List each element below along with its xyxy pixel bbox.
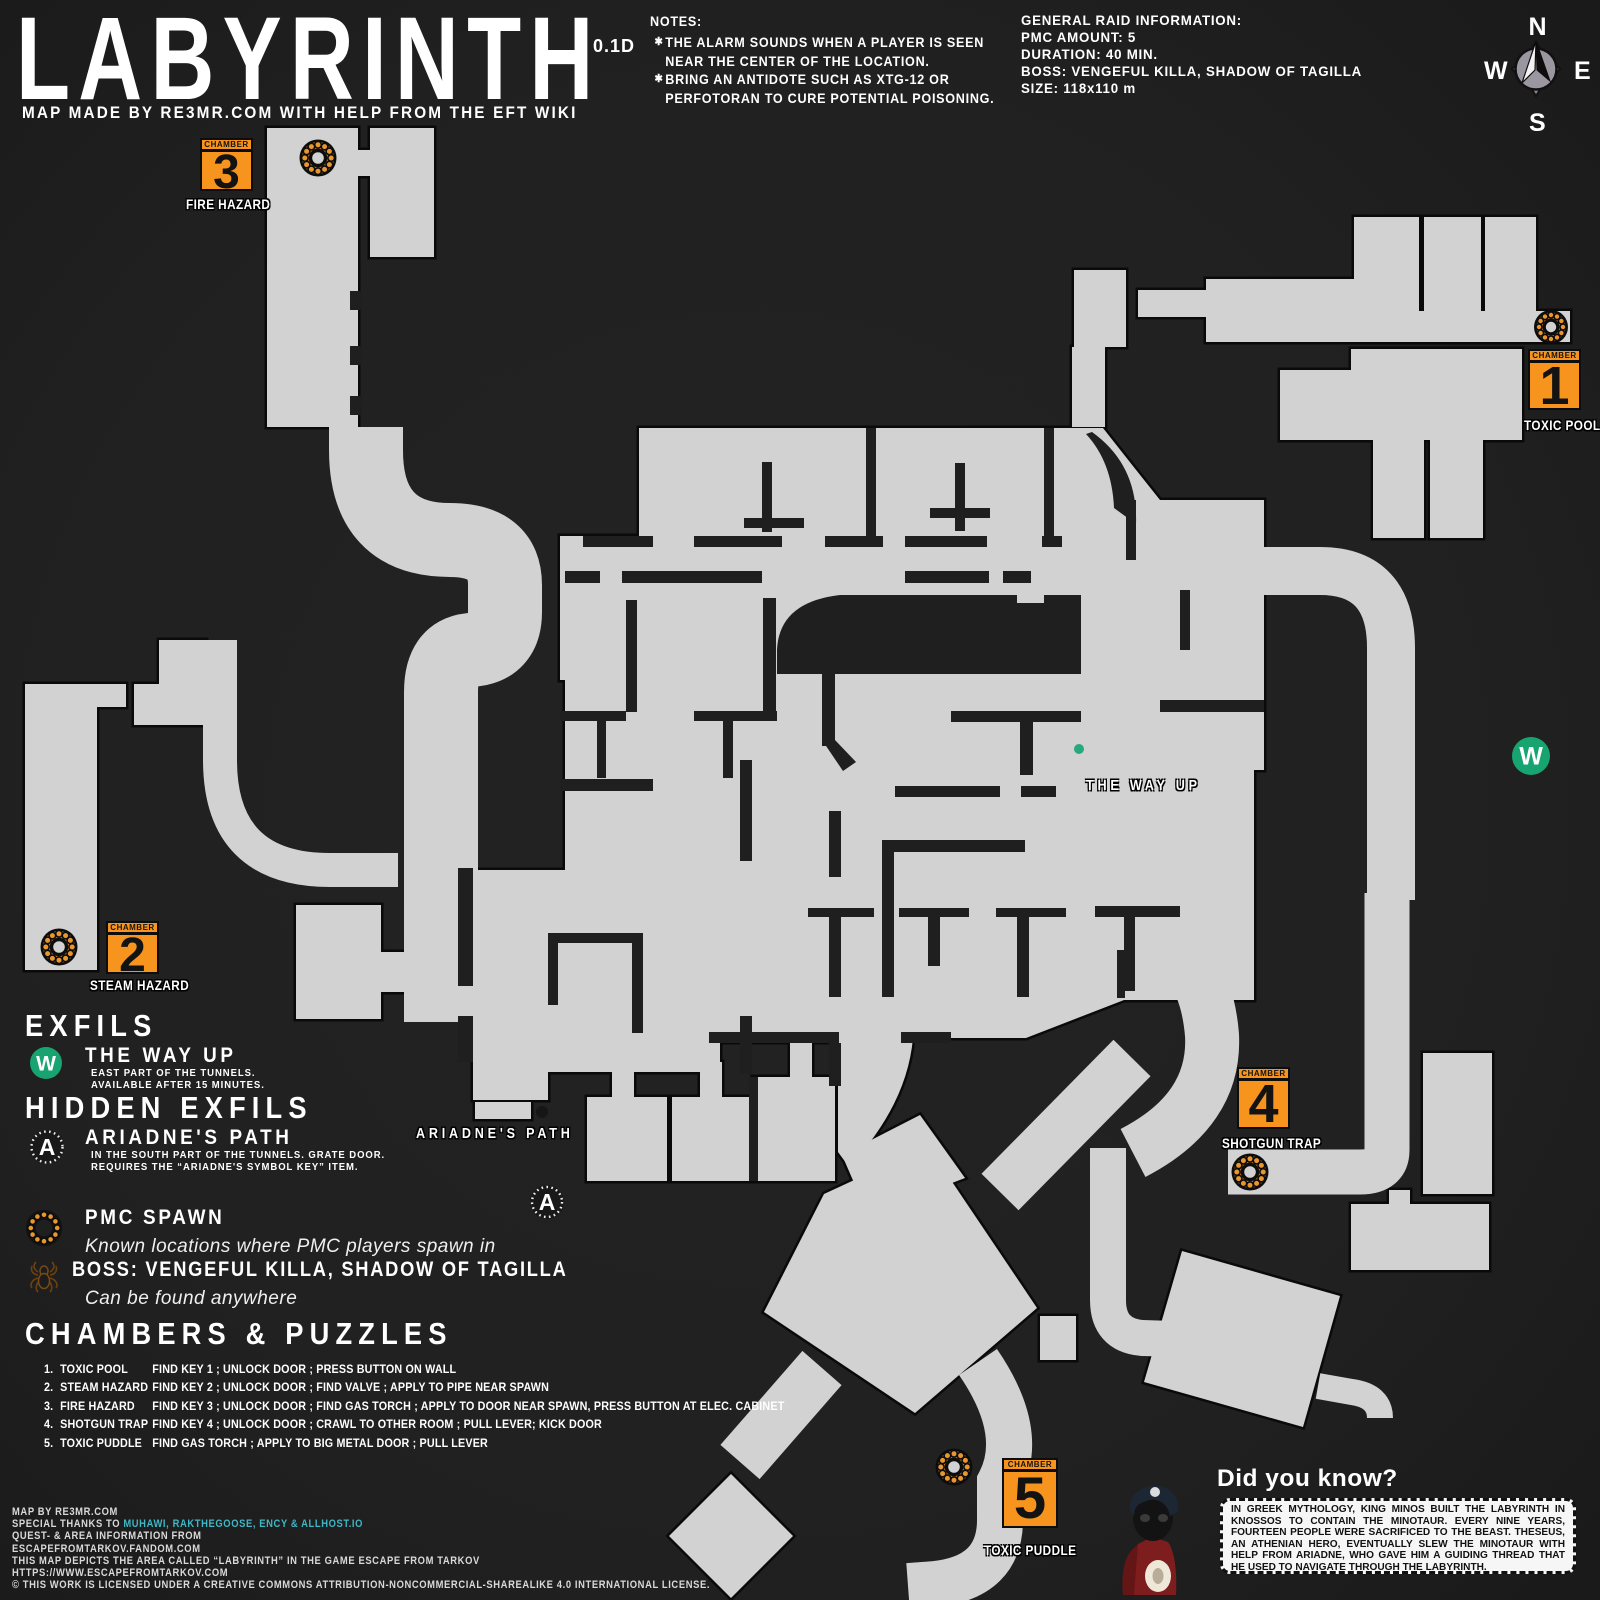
svg-text:W: W bbox=[36, 1053, 56, 1076]
svg-text:W: W bbox=[1519, 743, 1543, 771]
svg-text:A: A bbox=[39, 1134, 56, 1160]
svg-text:N: N bbox=[1529, 13, 1547, 41]
svg-text:W: W bbox=[1484, 57, 1508, 85]
svg-text:S: S bbox=[1529, 109, 1546, 137]
svg-text:E: E bbox=[1574, 57, 1591, 85]
svg-text:A: A bbox=[539, 1189, 556, 1215]
